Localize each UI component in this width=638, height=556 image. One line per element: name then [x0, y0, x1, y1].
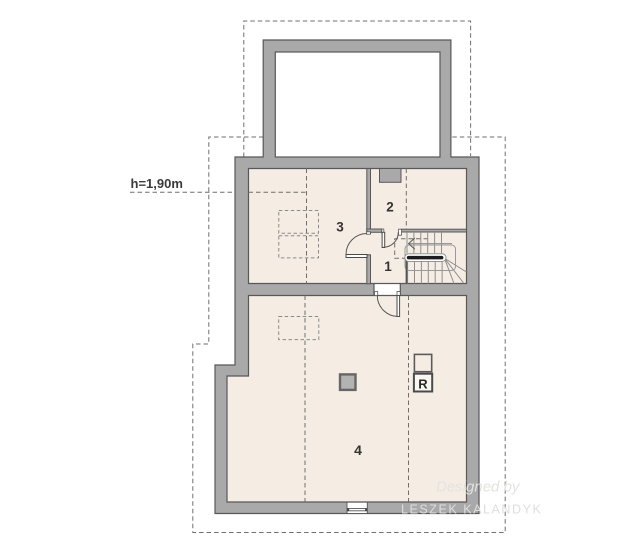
svg-text:h=1,90m: h=1,90m [131, 176, 183, 191]
svg-text:R: R [418, 377, 428, 392]
svg-text:2: 2 [386, 200, 394, 215]
svg-text:1: 1 [384, 259, 392, 274]
svg-text:LESZEK KALANDYK: LESZEK KALANDYK [401, 503, 542, 517]
svg-text:Designed by: Designed by [436, 479, 521, 496]
svg-text:3: 3 [336, 220, 344, 235]
svg-text:4: 4 [354, 442, 362, 458]
